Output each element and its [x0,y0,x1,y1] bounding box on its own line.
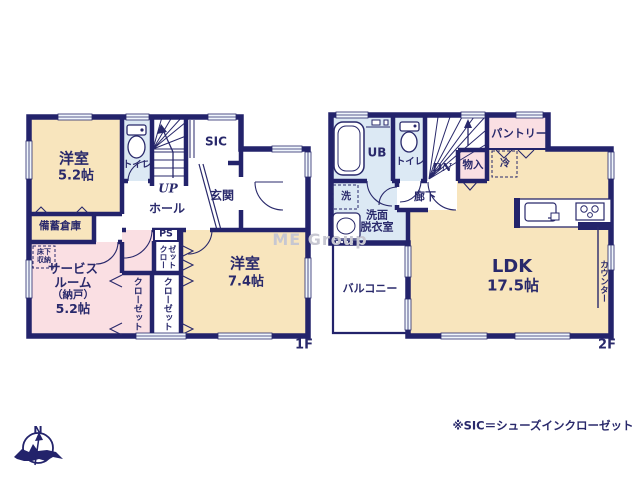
sic-footnote: ※SIC＝シューズインクローゼット [452,420,633,433]
compass: N [14,424,63,465]
label-2f-balcony: バルコニー [343,283,398,295]
label-2f-corridor: 廊下 [414,191,436,203]
label-1f-closet-right: クローゼット [161,275,170,333]
label-1f-bedroom52-size: 5.2帖 [58,170,94,185]
label-1f-toilet: トイレ [123,161,152,172]
label-1f-service-line2: ルーム [48,276,98,290]
label-2f-fridge: 冷 [500,158,510,169]
label-2f-floor: 2F [598,339,616,354]
label-1f-storage: 備蓄倉庫 [39,221,81,233]
watermark: ME Group [272,231,367,249]
label-1f-hall: ホール [149,202,185,215]
label-2f-toilet: トイレ [396,158,425,169]
compass-north-label: N [33,424,42,437]
label-1f-service-line1: サービス [48,262,98,276]
label-1f-ps: PS [159,230,173,241]
compass-bird-shape [14,444,63,461]
sic-shelf [190,120,194,158]
floorplan-page: N 洋室 5.2帖 トイレ UP SIC 玄関 ホール 備蓄倉庫 床下 収納 サ… [0,0,640,480]
kitchen-stove-icon [576,203,604,220]
kitchen-counter [514,198,611,230]
label-1f-bedroom74-size: 7.4帖 [228,276,264,291]
label-2f-pantry: パントリー [491,128,547,140]
label-1f-floor: 1F [295,339,313,354]
label-2f-monoire: 物入 [463,160,484,172]
room-2f-ldk [408,149,611,336]
label-2f-washer: 洗 [341,191,351,202]
label-1f-closet-ps: クローゼット [158,242,176,272]
label-1f-sic: SIC [205,135,227,148]
stairs-dn-arrowhead [464,119,472,128]
label-1f-serviceroom: サービス ルーム （納戸） 5.2帖 [48,262,98,316]
label-1f-closet-left: クローゼット [131,275,140,333]
label-2f-counter: カウンター [599,257,608,305]
label-1f-bedroom74-name: 洋室 [230,256,260,273]
stairs-1f [152,117,186,176]
toilet-icon-1f [127,125,146,158]
label-2f-ub: UB [368,146,387,159]
label-1f-genkan: 玄関 [210,189,234,202]
label-1f-up: UP [158,182,178,195]
label-2f-dn: DN [432,162,452,174]
label-1f-bedroom52-name: 洋室 [59,151,89,168]
label-2f-ldk-name: LDK [492,257,532,277]
label-2f-ldk-size: 17.5帖 [487,278,539,295]
kitchen-sink-icon [525,203,559,221]
label-1f-service-line3: （納戸） [48,290,98,302]
label-1f-service-line4: 5.2帖 [48,302,98,316]
toilet-icon-2f [400,122,419,152]
